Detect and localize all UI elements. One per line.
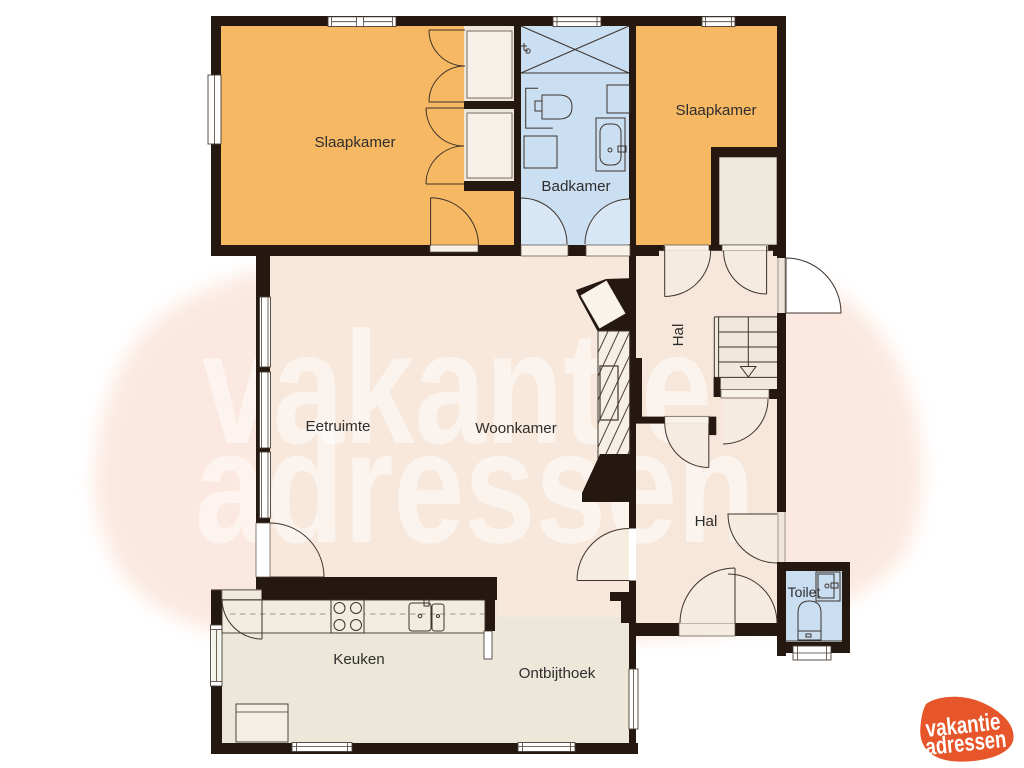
svg-text:Ontbijthoek: Ontbijthoek [519, 665, 596, 682]
svg-text:Slaapkamer: Slaapkamer [675, 102, 756, 119]
svg-text:Woonkamer: Woonkamer [475, 420, 557, 437]
svg-text:Slaapkamer: Slaapkamer [314, 134, 395, 151]
svg-text:Hal: Hal [695, 513, 718, 530]
svg-text:Hal: Hal [670, 324, 687, 347]
svg-text:Eetruimte: Eetruimte [306, 418, 371, 435]
svg-text:Badkamer: Badkamer [541, 178, 610, 195]
svg-text:Keuken: Keuken [333, 651, 385, 668]
svg-text:Toilet: Toilet [788, 584, 821, 600]
